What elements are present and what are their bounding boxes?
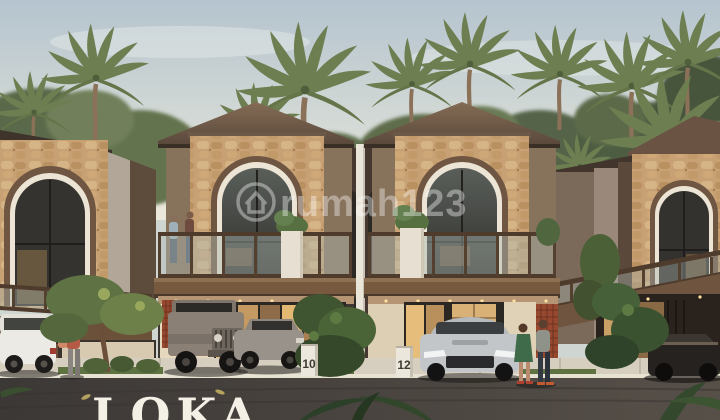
brand-wordmark: LOKA xyxy=(92,388,262,420)
balcony-fascia xyxy=(154,282,356,296)
watermark-text: rumah123 xyxy=(280,183,468,225)
balcony-fascia xyxy=(364,282,560,296)
balcony-railing xyxy=(368,232,556,278)
curb xyxy=(0,374,720,378)
house-number-10: 10 xyxy=(301,344,318,376)
house-number-12: 12 xyxy=(396,346,413,377)
house-number-10-label: 10 xyxy=(302,357,316,371)
balcony-railing xyxy=(158,232,352,278)
villa-render-image: 10 12 rumah123 LOKA xyxy=(0,0,720,420)
house-number-12-label: 12 xyxy=(397,358,411,372)
render-canvas: 10 12 rumah123 LOKA xyxy=(0,0,720,420)
